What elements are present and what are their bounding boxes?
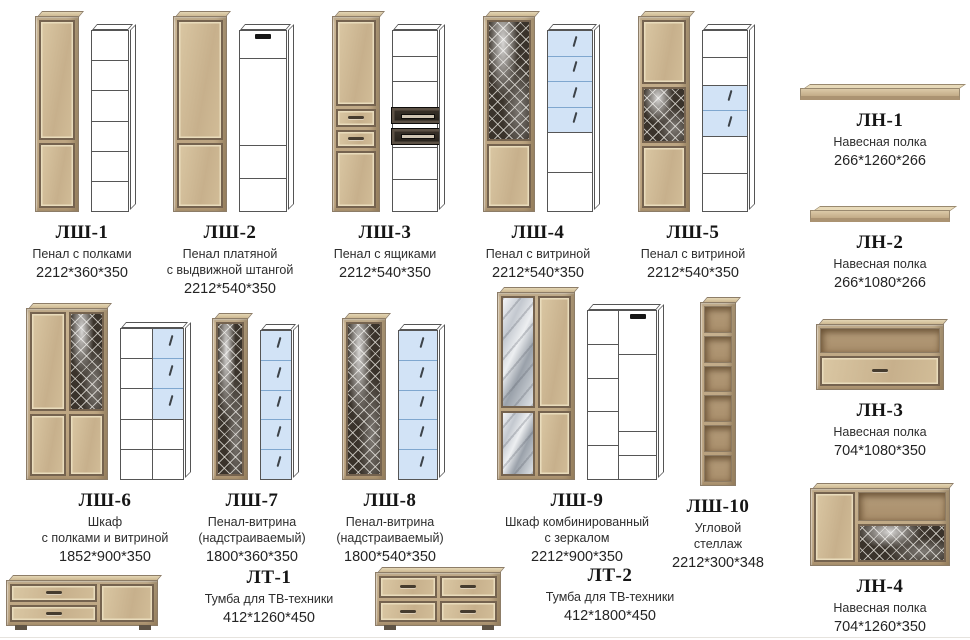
- product-description: Пенал с витриной: [641, 246, 745, 262]
- product-code: ЛН-4: [857, 576, 904, 598]
- product-dimensions: 1800*360*350: [206, 549, 298, 565]
- product-description: Пенал-витрина (надстраиваемый): [198, 514, 305, 546]
- product-dimensions: 2212*360*350: [36, 265, 128, 281]
- product-lsh7: ЛШ-7 Пенал-витрина (надстраиваемый) 1800…: [172, 300, 332, 565]
- product-ln2: ЛН-2 Навесная полка 266*1080*266: [798, 188, 962, 291]
- wall-cabinet-illustration: [798, 482, 962, 566]
- product-lsh3: ЛШ-3 Пенал с ящиками 2212*540*350: [310, 8, 460, 281]
- product-code: ЛШ-5: [667, 222, 720, 244]
- product-lsh1: ЛШ-1 Пенал с полками 2212*360*350: [6, 8, 158, 281]
- product-dimensions: 704*1260*350: [834, 619, 926, 635]
- product-code: ЛШ-8: [364, 490, 417, 512]
- product-description: Тумба для ТВ-техники: [546, 589, 675, 605]
- cabinet-illustration: [310, 8, 460, 212]
- wall-cabinet-illustration: [798, 316, 962, 390]
- cabinet-illustration: [487, 300, 667, 480]
- product-code: ЛШ-2: [204, 222, 257, 244]
- shelf-rack-illustration: [663, 300, 773, 486]
- product-description: Навесная полка: [833, 424, 926, 440]
- cabinet-illustration: [320, 300, 460, 480]
- product-code: ЛТ-1: [247, 567, 292, 589]
- product-description: Пенал с полками: [32, 246, 131, 262]
- product-dimensions: 412*1260*450: [223, 610, 315, 626]
- product-code: ЛШ-3: [359, 222, 412, 244]
- product-dimensions: 704*1080*350: [834, 443, 926, 459]
- product-lsh2: ЛШ-2 Пенал платяной с выдвижной штангой …: [150, 8, 310, 297]
- cabinet-illustration: [20, 300, 190, 480]
- cabinet-illustration: [460, 8, 616, 212]
- product-dimensions: 266*1260*266: [834, 153, 926, 169]
- product-ln3: ЛН-3 Навесная полка 704*1080*350: [798, 316, 962, 459]
- product-description: Тумба для ТВ-техники: [205, 591, 334, 607]
- product-code: ЛШ-6: [79, 490, 132, 512]
- tv-stand-illustration: [6, 566, 158, 626]
- product-description: Навесная полка: [833, 256, 926, 272]
- product-code: ЛШ-9: [551, 490, 604, 512]
- product-dimensions: 2212*540*350: [184, 281, 276, 297]
- product-dimensions: 1852*900*350: [59, 549, 151, 565]
- bottom-divider: [0, 637, 970, 638]
- product-description: Пенал-витрина (надстраиваемый): [336, 514, 443, 546]
- product-ln1: ЛН-1 Навесная полка 266*1260*266: [798, 44, 962, 169]
- product-dimensions: 2212*540*350: [492, 265, 584, 281]
- product-description: Шкаф комбинированный с зеркалом: [505, 514, 649, 546]
- product-lsh9: ЛШ-9 Шкаф комбинированный с зеркалом 221…: [487, 300, 667, 565]
- cabinet-illustration: [150, 8, 310, 212]
- product-dimensions: 412*1800*450: [564, 608, 656, 624]
- product-code: ЛН-2: [857, 232, 904, 254]
- product-lsh10: ЛШ-10 Угловой стеллаж 2212*300*348: [663, 300, 773, 571]
- product-description: Пенал с ящиками: [334, 246, 437, 262]
- product-code: ЛТ-2: [588, 565, 633, 587]
- product-description: Навесная полка: [833, 134, 926, 150]
- product-description: Пенал платяной с выдвижной штангой: [167, 246, 294, 278]
- product-code: ЛШ-10: [687, 496, 750, 518]
- product-lsh4: ЛШ-4 Пенал с витриной 2212*540*350: [460, 8, 616, 281]
- product-lsh5: ЛШ-5 Пенал с витриной 2212*540*350: [614, 8, 772, 281]
- product-description: Угловой стеллаж: [694, 520, 742, 552]
- product-dimensions: 266*1080*266: [834, 275, 926, 291]
- product-lsh8: ЛШ-8 Пенал-витрина (надстраиваемый) 1800…: [320, 300, 460, 565]
- wall-shelf-illustration: [798, 188, 962, 222]
- product-code: ЛН-3: [857, 400, 904, 422]
- wall-shelf-illustration: [798, 44, 962, 100]
- product-code: ЛШ-7: [226, 490, 279, 512]
- product-code: ЛН-1: [857, 110, 904, 132]
- product-description: Пенал с витриной: [486, 246, 590, 262]
- product-code: ЛШ-1: [56, 222, 109, 244]
- cabinet-illustration: [6, 8, 158, 212]
- tv-stand-illustration: [374, 562, 502, 626]
- product-lsh6: ЛШ-6 Шкаф с полками и витриной 1852*900*…: [20, 300, 190, 565]
- cabinet-illustration: [614, 8, 772, 212]
- product-code: ЛШ-4: [512, 222, 565, 244]
- product-description: Навесная полка: [833, 600, 926, 616]
- product-lt2: ЛТ-2 Тумба для ТВ-техники 412*1800*450: [374, 562, 704, 626]
- product-description: Шкаф с полками и витриной: [42, 514, 169, 546]
- product-dimensions: 2212*540*350: [339, 265, 431, 281]
- product-ln4: ЛН-4 Навесная полка 704*1260*350: [798, 482, 962, 635]
- cabinet-illustration: [172, 300, 332, 480]
- product-dimensions: 2212*540*350: [647, 265, 739, 281]
- product-lt1: ЛТ-1 Тумба для ТВ-техники 412*1260*450: [6, 566, 366, 626]
